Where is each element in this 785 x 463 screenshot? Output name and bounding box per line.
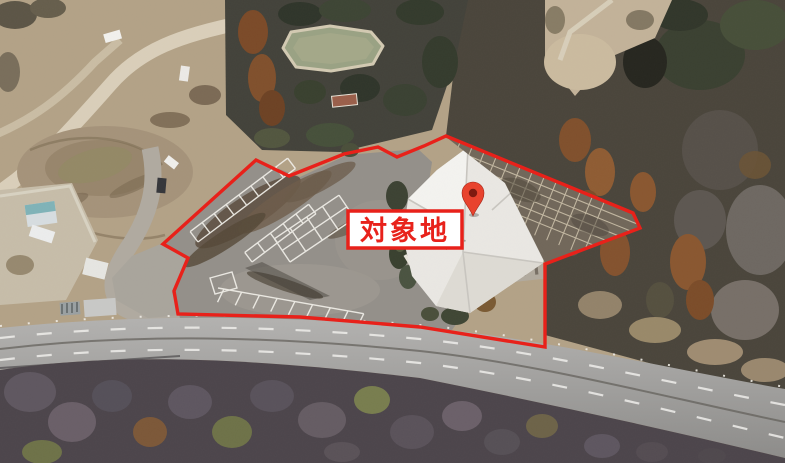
site-label-box: 対象地 (348, 211, 462, 248)
site-label-text: 対象地 (360, 215, 450, 247)
aerial-photo: 対象地 (0, 0, 785, 463)
annotated-aerial-map: 対象地 (0, 0, 785, 463)
